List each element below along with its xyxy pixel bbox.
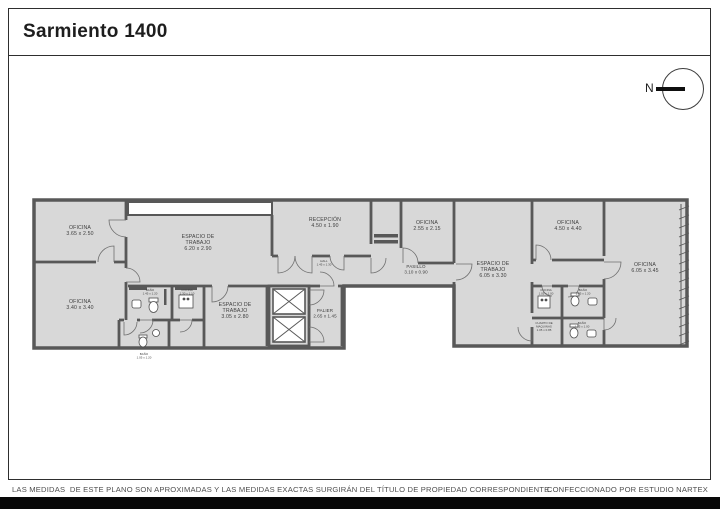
room-label-oficina-d: OFICINA 4.50 x 4.40 <box>554 220 581 232</box>
room-label-bano-b: BAÑO 1.05 x 1.20 <box>137 351 152 360</box>
svg-text:3.65 x 2.50: 3.65 x 2.50 <box>66 231 93 237</box>
svg-text:6.05 x 3.30: 6.05 x 3.30 <box>479 273 506 279</box>
elevator-block <box>269 286 309 346</box>
svg-text:1.05 x 1.20: 1.05 x 1.20 <box>137 356 152 360</box>
svg-text:4.50 x 4.40: 4.50 x 4.40 <box>554 226 581 232</box>
svg-text:2.65 x 1.45: 2.65 x 1.45 <box>313 314 337 319</box>
room-label-recepcion: RECEPCIÓN 4.50 x 1.90 <box>309 216 341 229</box>
svg-text:PALIER: PALIER <box>317 308 334 313</box>
svg-text:1.05 x 1.00: 1.05 x 1.00 <box>539 292 554 296</box>
svg-text:1.65 x 1.20: 1.65 x 1.20 <box>576 292 591 296</box>
page: { "window": { "title": "Sarmiento 1400" … <box>0 0 720 509</box>
svg-text:3.10 x 0.90: 3.10 x 0.90 <box>404 270 428 275</box>
svg-text:RECEPCIÓN: RECEPCIÓN <box>309 216 341 223</box>
north-needle-icon <box>656 87 685 91</box>
bottom-black-bar <box>0 497 720 509</box>
svg-text:4.50 x 1.90: 4.50 x 1.90 <box>311 223 338 229</box>
north-label: N <box>645 81 654 95</box>
title-bar: Sarmiento 1400 <box>9 9 710 56</box>
svg-text:1.30 x 1.10: 1.30 x 1.10 <box>180 292 195 296</box>
floor-plan-svg: OFICINA 3.65 x 2.50 OFICINA 3.40 x 3.40 … <box>30 194 694 376</box>
room-label-espacio-c: ESPACIO DE TRABAJO 6.05 x 3.30 <box>477 261 510 279</box>
room-label-cocina-b: COCINA 1.05 x 1.00 <box>539 288 554 296</box>
svg-text:3.40 x 3.40: 3.40 x 3.40 <box>66 305 93 311</box>
footer-credit: CONFECCIONADO POR ESTUDIO NARTEX <box>547 485 708 494</box>
room-label-pasillo: PASILLO 3.10 x 0.90 <box>404 264 428 275</box>
room-label-espacio-a: ESPACIO DE TRABAJO 6.20 x 2.90 <box>182 234 215 252</box>
air-shaft <box>128 202 272 215</box>
room-label-espacio-b: ESPACIO DE TRABAJO 3.05 x 2.80 <box>219 302 252 320</box>
compass: N <box>640 62 706 118</box>
svg-text:1.45 x 1.20: 1.45 x 1.20 <box>143 292 158 296</box>
room-label-cocina-a: COCINA 1.30 x 1.10 <box>180 288 195 296</box>
page-title: Sarmiento 1400 <box>23 21 168 43</box>
kitchen-b-fixtures <box>538 296 550 308</box>
svg-text:1.05 x 0.85: 1.05 x 0.85 <box>537 328 552 332</box>
footer-disclaimer: LAS MEDIDAS DE ESTE PLANO SON APROXIMADA… <box>12 485 552 494</box>
elevator-shaft-2 <box>273 317 305 342</box>
room-label-oficina-c: OFICINA 2.55 x 2.15 <box>413 220 440 232</box>
svg-text:3.05 x 2.80: 3.05 x 2.80 <box>221 314 248 320</box>
room-label-cuarto-maquinas: CUARTO DE MAQUINAS 1.05 x 0.85 <box>535 321 552 332</box>
elevator-shaft-1 <box>273 289 305 314</box>
svg-text:2.55 x 2.15: 2.55 x 2.15 <box>413 226 440 232</box>
svg-text:PASILLO: PASILLO <box>406 264 426 269</box>
svg-text:1.45 x 1.30: 1.45 x 1.30 <box>317 263 332 267</box>
svg-text:6.05 x 3.45: 6.05 x 3.45 <box>631 268 658 274</box>
floor-plan: OFICINA 3.65 x 2.50 OFICINA 3.40 x 3.40 … <box>30 194 694 376</box>
room-label-oficina-e: OFICINA 6.05 x 3.45 <box>631 262 658 274</box>
room-label-oficina-b: OFICINA 3.40 x 3.40 <box>66 299 93 311</box>
room-label-oficina-a: OFICINA 3.65 x 2.50 <box>66 225 93 237</box>
svg-text:6.20 x 2.90: 6.20 x 2.90 <box>184 246 211 252</box>
svg-text:1.25 x 1.00: 1.25 x 1.00 <box>575 325 590 329</box>
